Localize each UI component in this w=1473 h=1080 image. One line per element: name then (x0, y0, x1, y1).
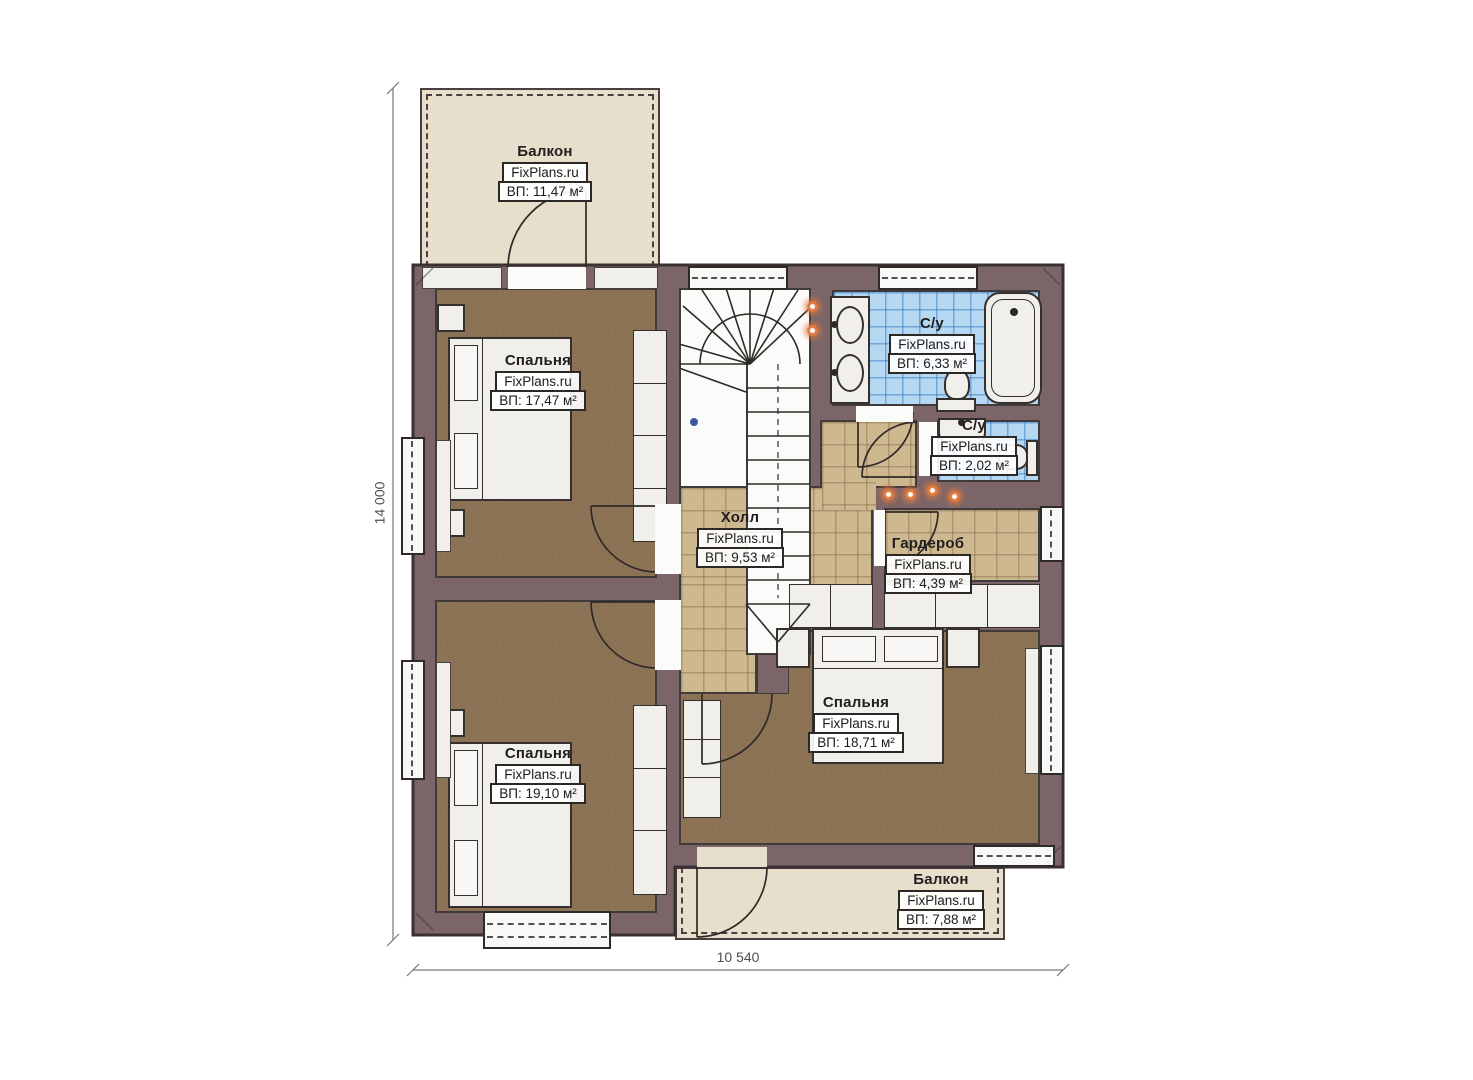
room-name: Спальня (455, 745, 621, 762)
nightstand (437, 304, 465, 332)
window-bottom-right (973, 845, 1055, 867)
room-name: С/у (852, 315, 1012, 332)
area-badge: ВП: 18,71 м² (808, 732, 904, 753)
area-badge: ВП: 4,39 м² (884, 573, 972, 594)
room-name: Холл (660, 509, 820, 526)
dimension-width: 10 540 (688, 949, 788, 965)
area-badge: ВП: 9,53 м² (696, 547, 784, 568)
room-name: Балкон (462, 143, 628, 160)
inner-sill (436, 662, 451, 778)
brand-badge: FixPlans.ru (931, 436, 1017, 457)
window-top-1 (688, 266, 788, 290)
pillow (884, 636, 938, 662)
label-balcony-bottom: Балкон FixPlans.ru ВП: 7,88 м² (860, 871, 1022, 930)
wall-light (904, 488, 917, 501)
room-name: С/у (900, 417, 1048, 434)
label-wardrobe: Гардероб FixPlans.ru ВП: 4,39 м² (848, 535, 1008, 594)
brand-badge: FixPlans.ru (502, 162, 588, 183)
door-opening-balcony-top (508, 267, 586, 289)
label-balcony-top: Балкон FixPlans.ru ВП: 11,47 м² (462, 143, 628, 202)
balcony-sill-right (594, 267, 658, 289)
label-bedroom-right: Спальня FixPlans.ru ВП: 18,71 м² (775, 694, 937, 753)
nightstand (946, 628, 980, 668)
brand-badge: FixPlans.ru (813, 713, 899, 734)
balcony-sill-left (422, 267, 502, 289)
label-bedroom-top-left: Спальня FixPlans.ru ВП: 17,47 м² (455, 352, 621, 411)
wall-light (882, 488, 895, 501)
door-opening-balcony-bottom (697, 847, 767, 867)
dimension-height: 14 000 (371, 482, 387, 525)
window-top-2 (878, 266, 978, 290)
floor-plan-canvas: 14 000 10 540 Балкон FixPlans.ru ВП: 11,… (0, 0, 1473, 1080)
inner-sill (436, 440, 451, 552)
brand-badge: FixPlans.ru (697, 528, 783, 549)
label-bathroom-small: С/у FixPlans.ru ВП: 2,02 м² (900, 417, 1048, 476)
toilet-tank (936, 398, 976, 412)
inner-sill (1025, 648, 1039, 774)
room-name: Спальня (775, 694, 937, 711)
area-badge: ВП: 2,02 м² (930, 455, 1018, 476)
pillow (454, 433, 478, 489)
area-badge: ВП: 7,88 м² (897, 909, 985, 930)
pillow (822, 636, 876, 662)
label-bathroom-main: С/у FixPlans.ru ВП: 6,33 м² (852, 315, 1012, 374)
window-left-2 (401, 660, 425, 780)
closet-column-bedroom-right (683, 700, 721, 818)
brand-badge: FixPlans.ru (889, 334, 975, 355)
brand-badge: FixPlans.ru (885, 554, 971, 575)
faucet-dot (831, 321, 838, 328)
pillow (454, 840, 478, 896)
area-badge: ВП: 17,47 м² (490, 390, 586, 411)
room-name: Гардероб (848, 535, 1008, 552)
window-right-1 (1040, 506, 1064, 562)
blanket-line (814, 668, 942, 669)
wall-light (806, 300, 819, 313)
nightstand (776, 628, 810, 668)
faucet-dot (831, 369, 838, 376)
wall-light (948, 490, 961, 503)
room-name: Балкон (860, 871, 1022, 888)
door-opening-bedroom-bottom-left (655, 600, 681, 670)
window-left-1 (401, 437, 425, 555)
label-bedroom-bottom-left: Спальня FixPlans.ru ВП: 19,10 м² (455, 745, 621, 804)
stair-marker-dot (690, 418, 698, 426)
hall-vestibule-opening (822, 482, 876, 510)
window-right-2 (1040, 645, 1064, 775)
brand-badge: FixPlans.ru (495, 371, 581, 392)
window-bottom-left (483, 911, 611, 949)
brand-badge: FixPlans.ru (898, 890, 984, 911)
wall-light (806, 324, 819, 337)
area-badge: ВП: 6,33 м² (888, 353, 976, 374)
label-hall: Холл FixPlans.ru ВП: 9,53 м² (660, 509, 820, 568)
area-badge: ВП: 19,10 м² (490, 783, 586, 804)
wall-light (926, 484, 939, 497)
room-name: Спальня (455, 352, 621, 369)
closet-column-bedroom-bottom-left (633, 705, 667, 895)
brand-badge: FixPlans.ru (495, 764, 581, 785)
area-badge: ВП: 11,47 м² (498, 181, 593, 202)
